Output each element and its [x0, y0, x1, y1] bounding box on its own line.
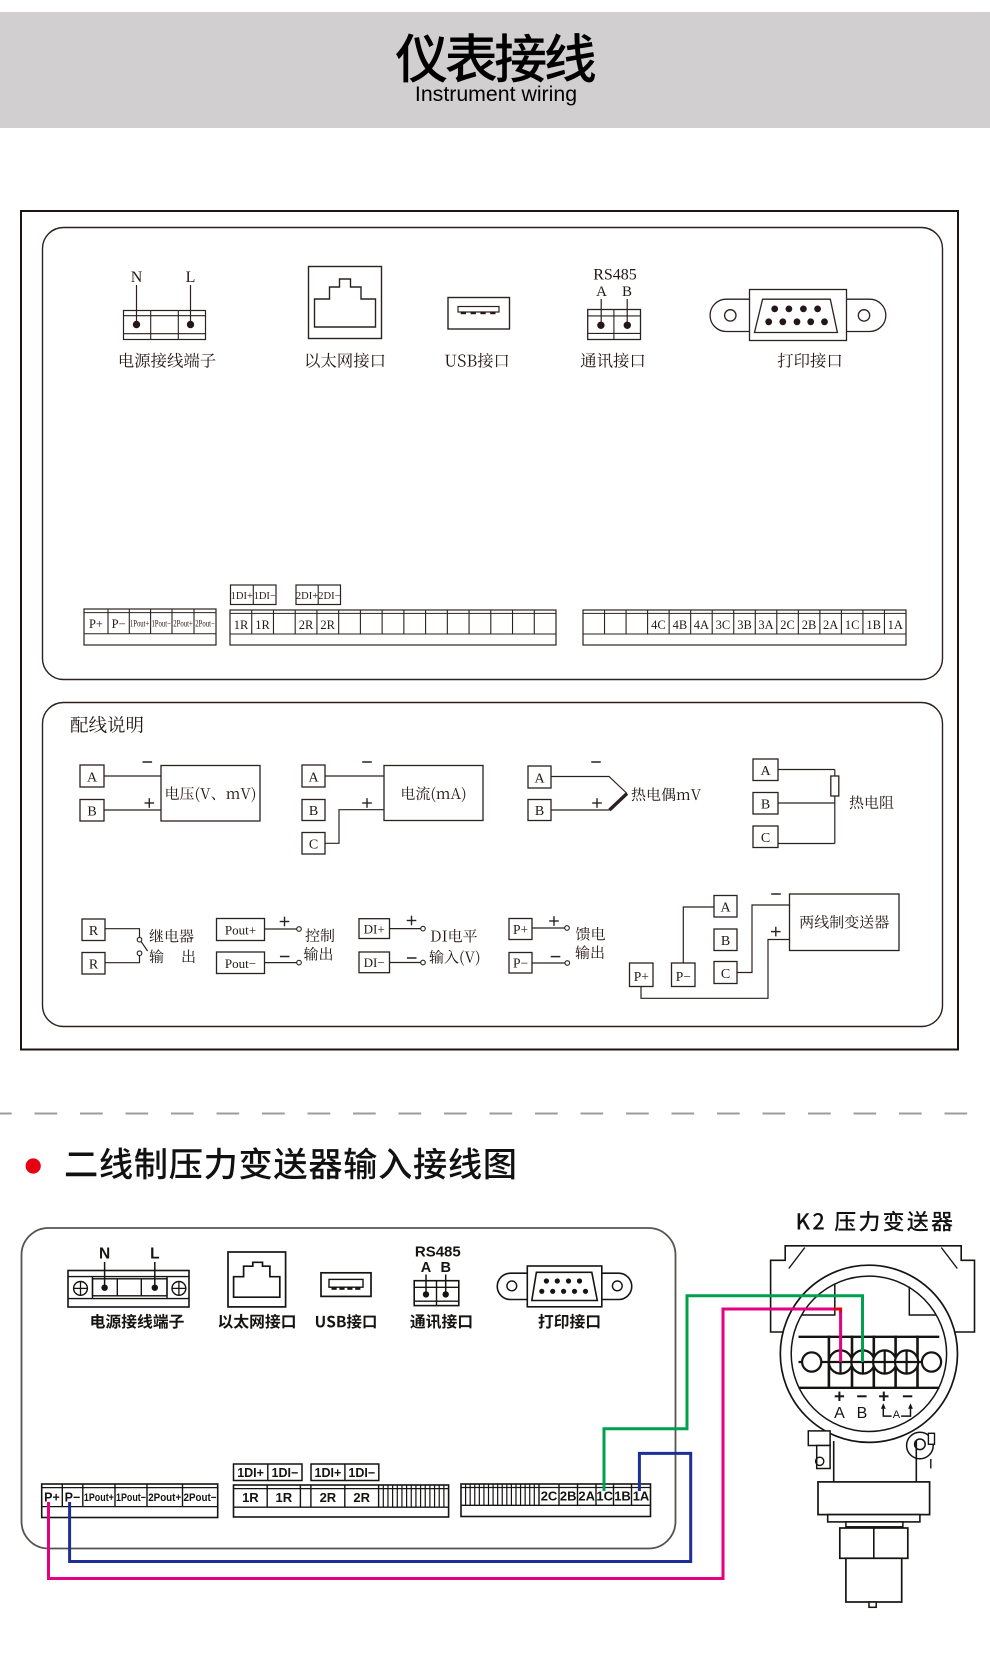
svg-text:1DI−: 1DI−	[254, 591, 276, 602]
svg-text:3B: 3B	[737, 618, 752, 632]
svg-text:A: A	[421, 1260, 432, 1276]
svg-text:2DI−: 2DI−	[318, 591, 340, 602]
svg-text:1A: 1A	[633, 1489, 650, 1504]
svg-text:C: C	[309, 838, 318, 853]
svg-text:C: C	[761, 831, 770, 846]
svg-text:A: A	[87, 771, 98, 786]
svg-text:P−: P−	[112, 617, 126, 631]
svg-text:B: B	[535, 804, 544, 819]
svg-text:1DI+: 1DI+	[315, 1466, 342, 1480]
svg-text:A: A	[308, 771, 319, 786]
svg-text:A: A	[720, 901, 731, 916]
svg-text:4A: 4A	[694, 618, 709, 632]
svg-text:1B: 1B	[614, 1489, 631, 1504]
svg-text:A: A	[534, 772, 545, 787]
svg-text:P+: P+	[44, 1491, 60, 1505]
svg-text:3A: 3A	[758, 618, 773, 632]
svg-text:2R: 2R	[353, 1490, 370, 1505]
svg-text:P+: P+	[634, 969, 649, 984]
svg-text:1DI+: 1DI+	[231, 591, 253, 602]
svg-text:RS485: RS485	[415, 1244, 461, 1261]
svg-text:Instrument wiring: Instrument wiring	[415, 82, 577, 106]
svg-text:A: A	[760, 764, 771, 779]
svg-text:B: B	[761, 798, 770, 813]
svg-text:1DI−: 1DI−	[348, 1466, 375, 1480]
svg-text:1C: 1C	[845, 618, 860, 632]
svg-text:RS485: RS485	[593, 267, 637, 284]
svg-text:2B: 2B	[560, 1489, 577, 1504]
svg-text:P−: P−	[676, 969, 691, 984]
svg-text:N: N	[99, 1246, 110, 1263]
svg-text:C: C	[721, 967, 730, 982]
svg-text:3C: 3C	[716, 618, 731, 632]
svg-text:1R: 1R	[255, 618, 270, 632]
svg-text:2R: 2R	[299, 618, 314, 632]
svg-text:1A: 1A	[888, 618, 903, 632]
svg-text:2B: 2B	[802, 618, 817, 632]
svg-text:1Pout+: 1Pout+	[130, 619, 150, 629]
svg-text:B: B	[721, 934, 730, 949]
svg-text:1R: 1R	[234, 618, 249, 632]
svg-text:2C: 2C	[541, 1489, 558, 1504]
svg-text:4C: 4C	[651, 618, 666, 632]
svg-text:Pout+: Pout+	[225, 923, 256, 938]
svg-text:1DI−: 1DI−	[272, 1466, 299, 1480]
svg-text:P+: P+	[513, 922, 528, 937]
svg-text:2A: 2A	[823, 618, 838, 632]
svg-text:B: B	[857, 1405, 868, 1422]
svg-text:L: L	[150, 1246, 159, 1263]
svg-text:2DI+: 2DI+	[296, 591, 318, 602]
svg-text:R: R	[89, 958, 99, 973]
svg-text:P−: P−	[65, 1491, 81, 1505]
svg-text:2A: 2A	[578, 1489, 595, 1504]
svg-text:P+: P+	[89, 617, 103, 631]
svg-text:N: N	[131, 269, 143, 286]
svg-text:2R: 2R	[320, 618, 335, 632]
svg-text:B: B	[440, 1260, 450, 1276]
svg-text:1Pout−: 1Pout−	[116, 1492, 146, 1504]
svg-text:4B: 4B	[673, 618, 688, 632]
svg-text:2Pout+: 2Pout+	[173, 619, 193, 629]
svg-text:1DI+: 1DI+	[237, 1466, 264, 1480]
svg-text:B: B	[87, 805, 96, 820]
svg-text:2Pout−: 2Pout−	[184, 1492, 217, 1504]
svg-text:A: A	[893, 1409, 901, 1421]
svg-text:1Pout+: 1Pout+	[84, 1492, 114, 1504]
svg-text:2R: 2R	[320, 1490, 337, 1505]
svg-text:DI+: DI+	[364, 922, 385, 937]
svg-text:L: L	[186, 269, 196, 286]
svg-text:2Pout+: 2Pout+	[148, 1492, 181, 1504]
svg-text:1Pout−: 1Pout−	[151, 619, 171, 629]
svg-text:A: A	[596, 284, 607, 300]
svg-text:1R: 1R	[275, 1490, 292, 1505]
svg-text:B: B	[309, 804, 318, 819]
svg-text:2C: 2C	[780, 618, 795, 632]
svg-text:1R: 1R	[242, 1490, 259, 1505]
svg-text:R: R	[89, 924, 99, 939]
svg-text:P−: P−	[513, 956, 528, 971]
svg-text:2Pout−: 2Pout−	[195, 619, 215, 629]
svg-text:1B: 1B	[866, 618, 881, 632]
svg-text:A: A	[834, 1405, 845, 1422]
svg-text:Pout−: Pout−	[225, 956, 256, 971]
svg-text:DI−: DI−	[364, 955, 385, 970]
svg-text:B: B	[622, 284, 632, 300]
